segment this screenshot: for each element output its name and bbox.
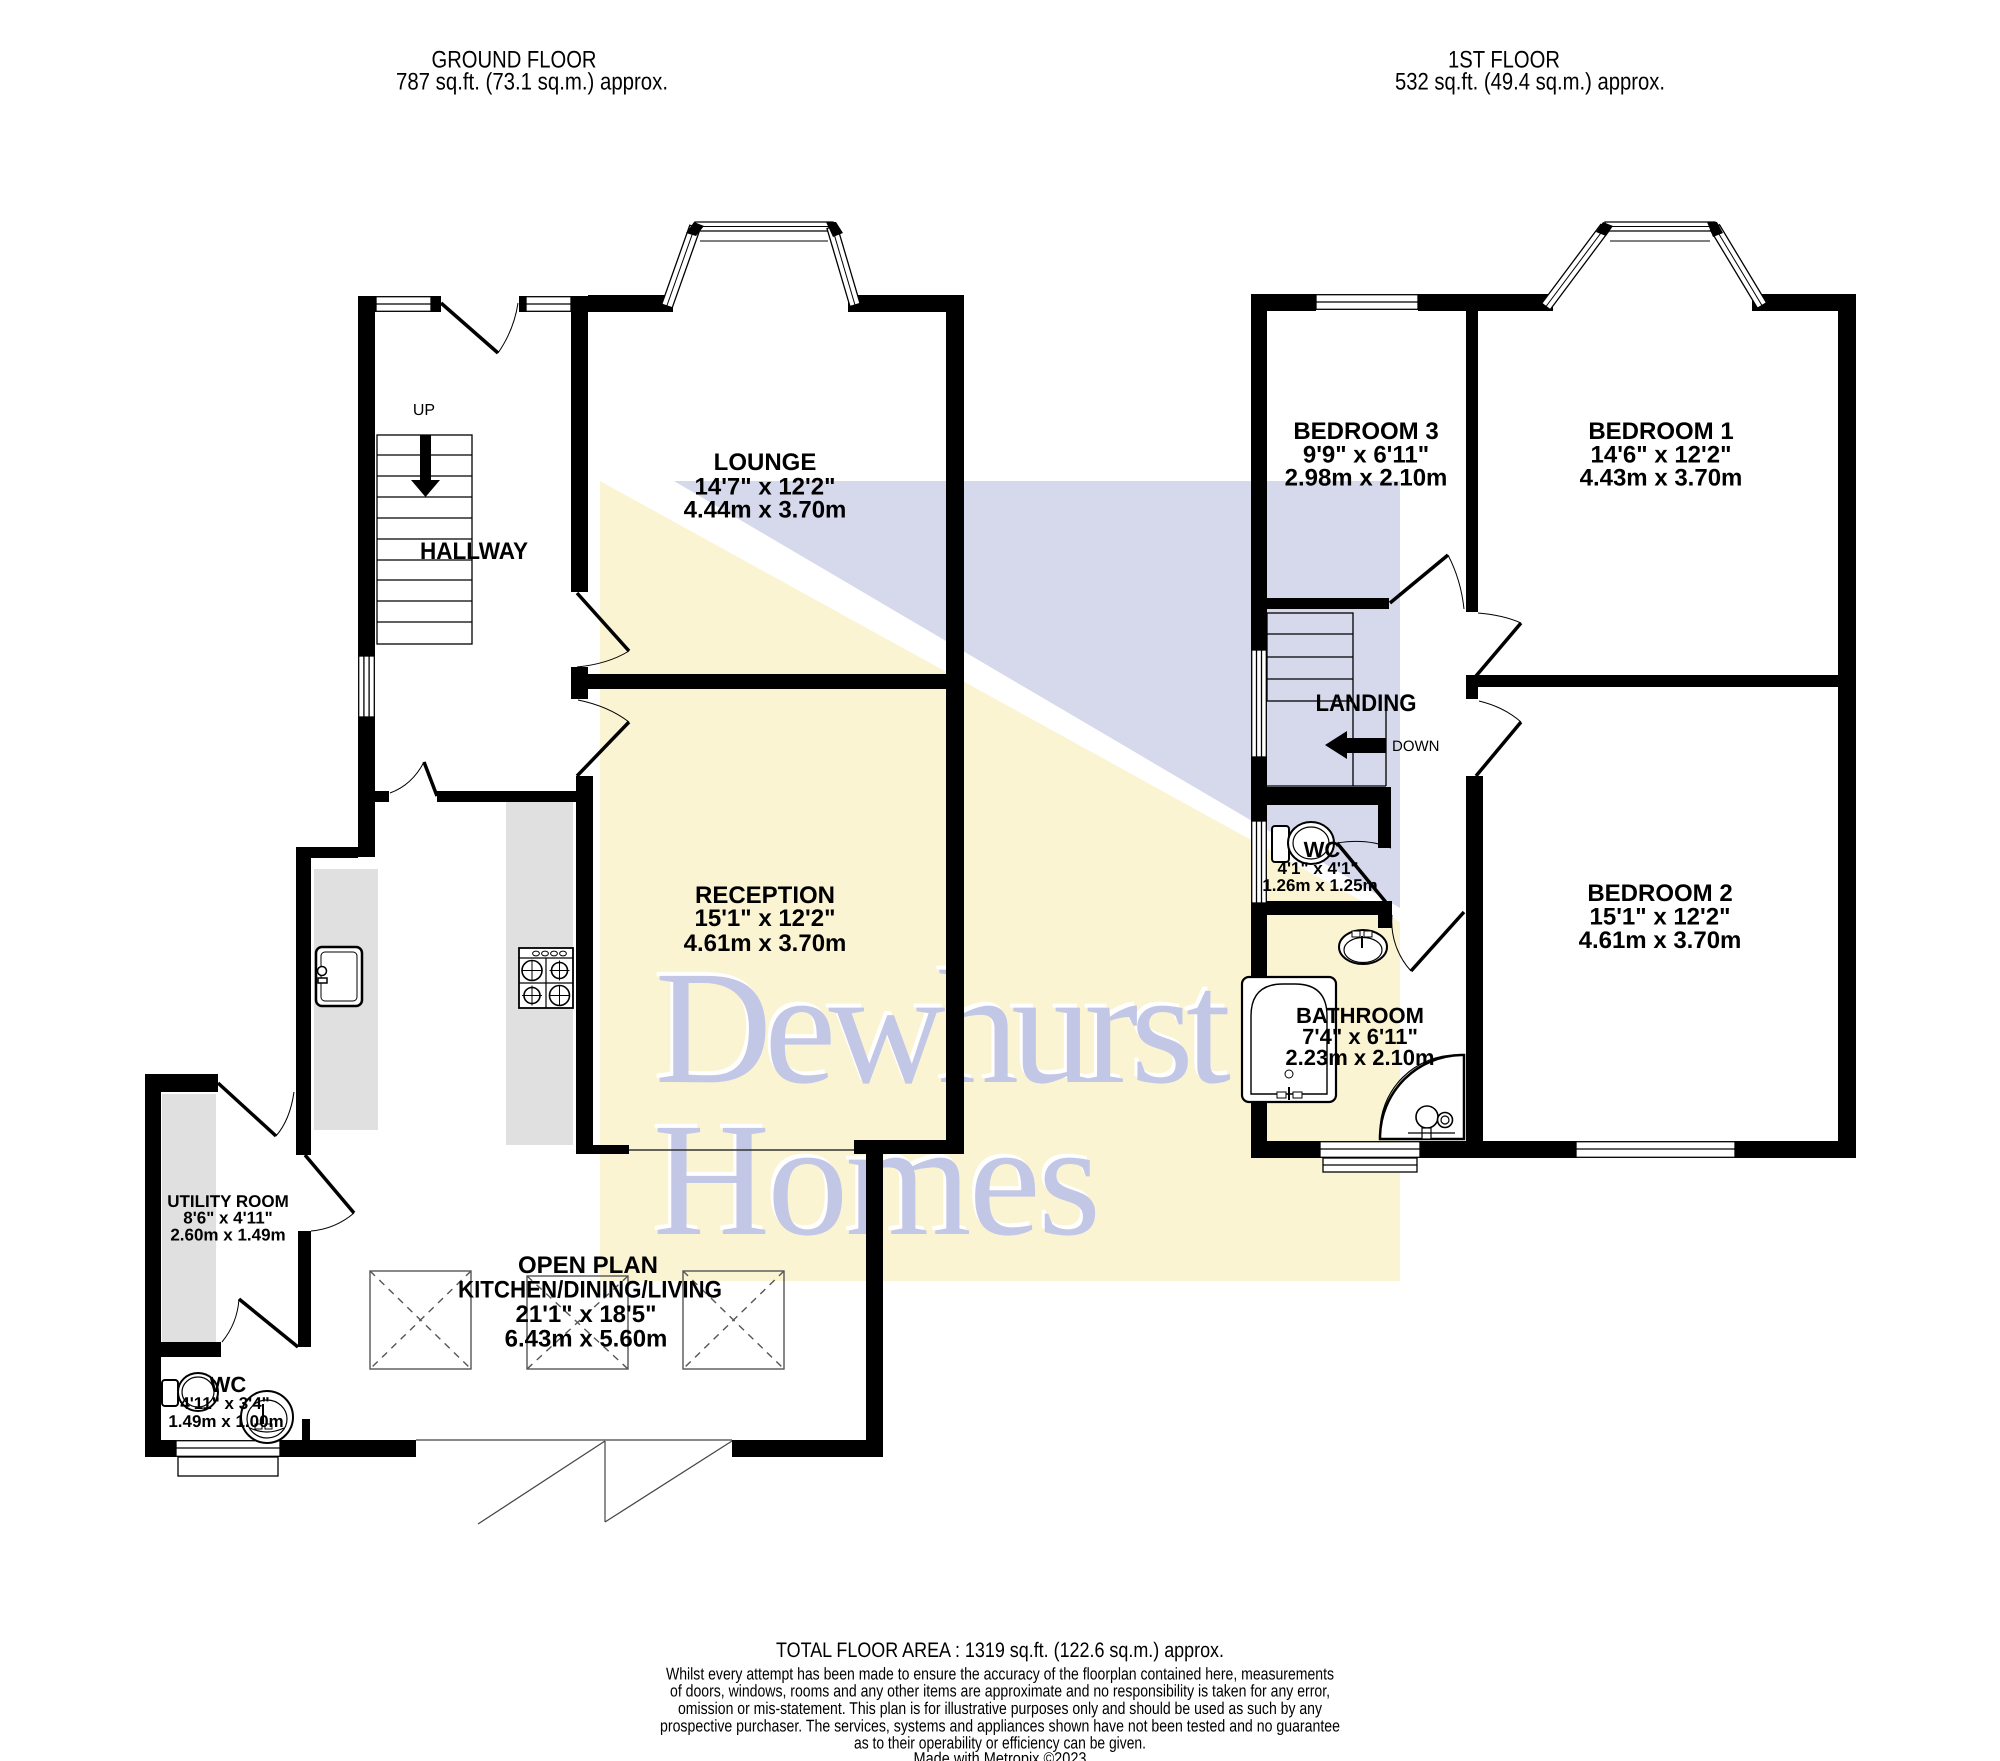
svg-text:15'1" x 12'2": 15'1" x 12'2" (695, 905, 836, 932)
svg-text:4.43m x 3.70m: 4.43m x 3.70m (1580, 465, 1743, 492)
svg-text:UP: UP (413, 402, 435, 419)
svg-text:2.98m x 2.10m: 2.98m x 2.10m (1285, 465, 1448, 492)
svg-text:532 sq.ft. (49.4 sq.m.) approx: 532 sq.ft. (49.4 sq.m.) approx. (1395, 69, 1665, 96)
svg-text:DOWN: DOWN (1392, 738, 1440, 755)
svg-text:OPEN PLAN: OPEN PLAN (518, 1252, 658, 1279)
svg-text:2.23m x 2.10m: 2.23m x 2.10m (1285, 1045, 1434, 1070)
svg-text:prospective purchaser. The ser: prospective purchaser. The services, sys… (660, 1716, 1340, 1735)
svg-text:21'1" x 18'5": 21'1" x 18'5" (516, 1301, 657, 1328)
svg-text:1.26m x 1.25m: 1.26m x 1.25m (1262, 876, 1377, 895)
svg-text:787 sq.ft. (73.1 sq.m.) approx: 787 sq.ft. (73.1 sq.m.) approx. (396, 69, 668, 96)
svg-text:6.43m x 5.60m: 6.43m x 5.60m (505, 1326, 668, 1353)
svg-text:1.49m x 1.00m: 1.49m x 1.00m (168, 1412, 283, 1431)
svg-text:LOUNGE: LOUNGE (714, 449, 817, 476)
svg-text:4.61m x 3.70m: 4.61m x 3.70m (684, 930, 847, 957)
svg-text:4.44m x 3.70m: 4.44m x 3.70m (684, 497, 847, 524)
svg-text:TOTAL FLOOR AREA : 1319 sq.ft.: TOTAL FLOOR AREA : 1319 sq.ft. (122.6 sq… (776, 1639, 1224, 1662)
svg-text:LANDING: LANDING (1316, 690, 1417, 717)
svg-text:HALLWAY: HALLWAY (420, 538, 528, 565)
svg-text:of doors, windows, rooms and a: of doors, windows, rooms and any other i… (670, 1682, 1330, 1701)
svg-text:Whilst every attempt has been: Whilst every attempt has been made to en… (666, 1665, 1334, 1684)
svg-text:Made with Metropix ©2023: Made with Metropix ©2023 (914, 1749, 1087, 1761)
svg-text:4.61m x 3.70m: 4.61m x 3.70m (1579, 927, 1742, 954)
svg-text:2.60m x 1.49m: 2.60m x 1.49m (170, 1226, 285, 1245)
svg-text:KITCHEN/DINING/LIVING: KITCHEN/DINING/LIVING (458, 1277, 722, 1304)
svg-text:omission or mis-statement. Thi: omission or mis-statement. This plan is … (678, 1699, 1322, 1718)
svg-text:4'11" x 3'4": 4'11" x 3'4" (180, 1394, 269, 1413)
